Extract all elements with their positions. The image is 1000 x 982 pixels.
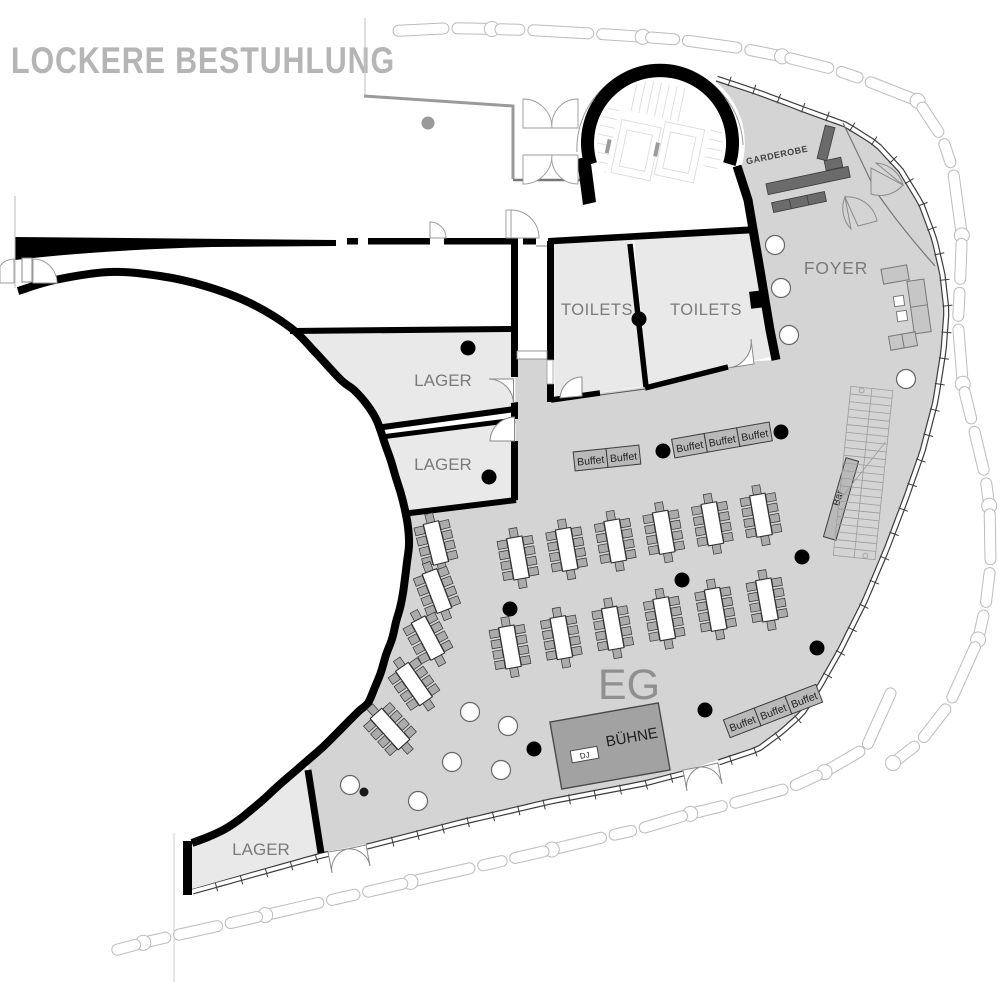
- svg-text:LOCKERE BESTUHLUNG: LOCKERE BESTUHLUNG: [11, 40, 395, 81]
- svg-text:LAGER: LAGER: [232, 840, 290, 859]
- svg-text:TOILETS: TOILETS: [670, 301, 742, 319]
- svg-text:EG: EG: [598, 661, 660, 709]
- svg-text:TOILETS: TOILETS: [561, 301, 633, 319]
- svg-text:LAGER: LAGER: [414, 371, 472, 390]
- svg-text:DJ: DJ: [579, 750, 590, 761]
- svg-text:FOYER: FOYER: [804, 258, 868, 278]
- svg-text:LAGER: LAGER: [414, 455, 472, 474]
